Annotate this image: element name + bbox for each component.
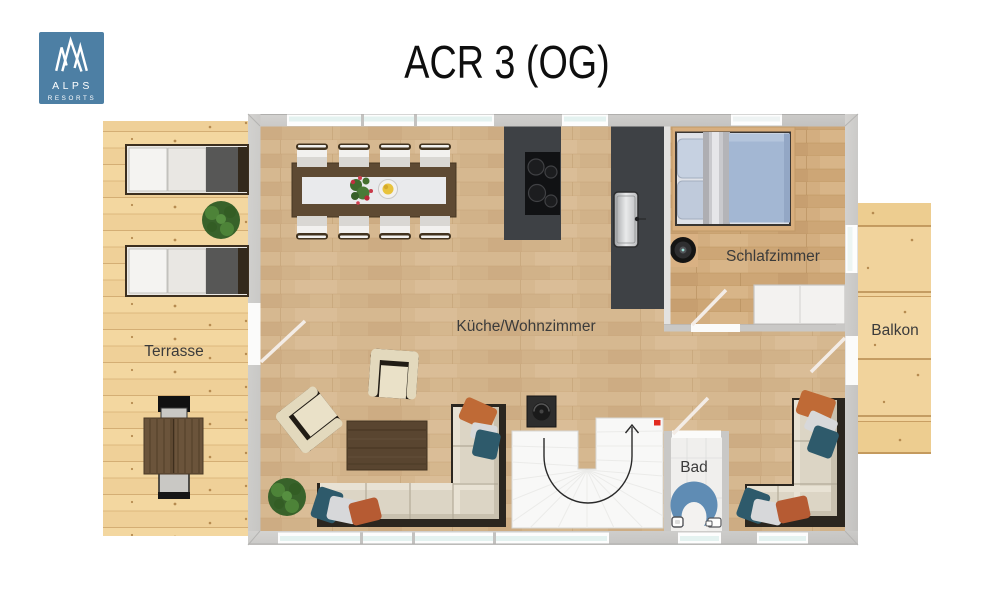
- svg-text:RESORTS: RESORTS: [48, 95, 97, 102]
- svg-text:Terrasse: Terrasse: [144, 343, 203, 360]
- svg-text:Küche/Wohnzimmer: Küche/Wohnzimmer: [456, 318, 595, 335]
- svg-text:ALPS: ALPS: [52, 80, 93, 92]
- svg-text:Bad: Bad: [680, 459, 708, 476]
- svg-text:Schlafzimmer: Schlafzimmer: [726, 248, 820, 265]
- svg-text:Balkon: Balkon: [871, 322, 918, 339]
